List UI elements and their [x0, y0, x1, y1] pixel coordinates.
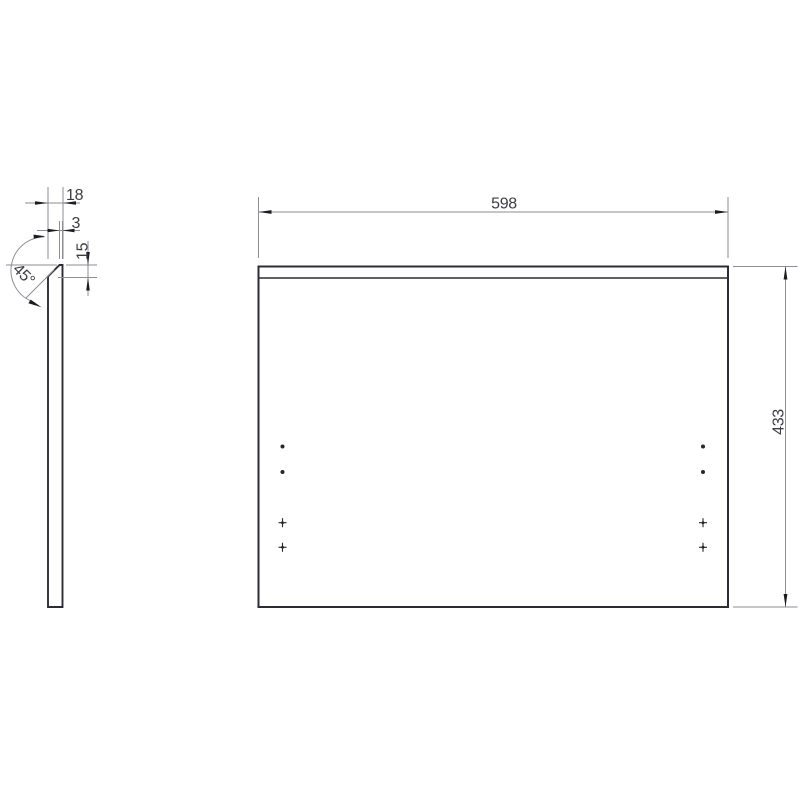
round-hole-mark [281, 470, 285, 474]
round-hole-mark [701, 470, 705, 474]
drawing-page: 18 3 15 [0, 0, 800, 800]
dim-width: 598 [259, 196, 729, 259]
front-panel-outline [259, 267, 729, 608]
dim-thickness-label: 18 [66, 187, 84, 204]
arrowhead-icon [86, 278, 90, 291]
arrowhead-icon [48, 229, 60, 233]
dim-height-label: 433 [771, 409, 788, 435]
arrowhead-icon [784, 594, 788, 607]
dim-chamfer-height-label: 15 [75, 242, 92, 260]
dim-height: 433 [733, 267, 798, 608]
side-profile-view: 18 3 15 [6, 187, 97, 607]
round-hole-mark [281, 445, 285, 449]
arrowhead-icon [28, 300, 41, 308]
dim-chamfer-height: 15 [58, 241, 97, 296]
round-hole-mark [701, 445, 705, 449]
dim-top-flat-label: 3 [72, 215, 81, 232]
front-view: 598 433 [259, 196, 798, 608]
arrowhead-icon [35, 201, 48, 205]
technical-drawing-canvas: 18 3 15 [0, 0, 800, 800]
side-panel-outline [48, 265, 63, 607]
dim-width-label: 598 [491, 196, 517, 213]
arrowhead-icon [715, 210, 728, 214]
arrowhead-icon [259, 210, 272, 214]
arrowhead-icon [784, 267, 788, 280]
